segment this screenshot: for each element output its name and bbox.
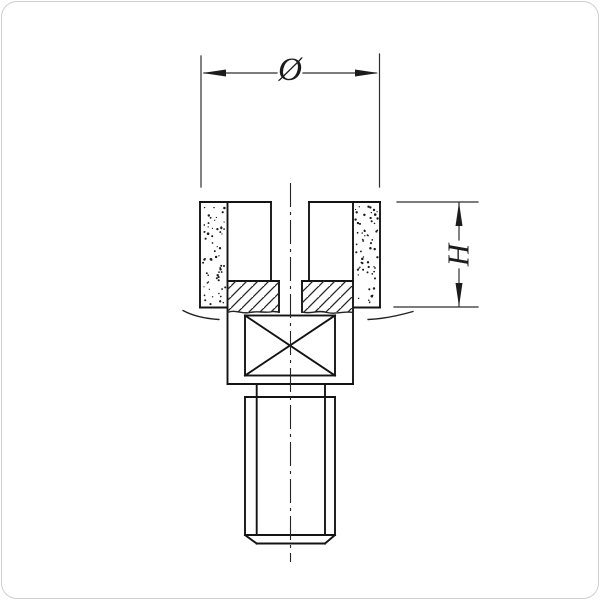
speckle-dot	[213, 207, 214, 208]
speckle-dot	[208, 214, 210, 216]
speckle-dot	[219, 247, 221, 249]
speckle-dot	[204, 207, 205, 208]
hub-hatch-right	[302, 281, 353, 312]
speckle-dot	[211, 259, 213, 261]
speckle-dot	[357, 269, 359, 271]
break-line-outer-left	[183, 311, 219, 320]
speckle-dot	[376, 256, 378, 258]
speckle-dot	[205, 238, 207, 240]
speckle-dot	[367, 234, 369, 236]
speckle-dot	[216, 277, 218, 279]
speckle-dot	[357, 222, 359, 224]
speckle-dot	[372, 295, 373, 296]
arrowhead-left-icon	[203, 70, 227, 77]
break-line-hub-left	[228, 311, 280, 313]
speckle-dot	[359, 206, 360, 207]
speckle-dot	[208, 222, 210, 224]
speckle-dot	[368, 299, 370, 301]
break-line-outer-right	[368, 312, 413, 320]
speckle-dot	[371, 273, 373, 275]
speckle-dot	[369, 217, 371, 219]
speckle-dot	[202, 262, 204, 264]
speckle-dot	[376, 230, 378, 232]
speckle-dot	[374, 213, 377, 216]
chamfer-right	[325, 535, 335, 544]
speckle-dot	[219, 300, 221, 302]
speckle-dot	[209, 289, 210, 290]
speckle-dot	[362, 269, 364, 271]
speckle-dot	[211, 235, 213, 237]
speckle-dot	[216, 228, 218, 230]
speckle-dot	[358, 274, 359, 275]
chamfer-left	[245, 535, 257, 544]
speckle-dot	[367, 261, 369, 263]
speckle-dot	[370, 242, 372, 244]
speckle-dot	[218, 293, 220, 295]
speckle-dot	[374, 267, 376, 269]
speckle-dot	[204, 231, 205, 232]
speckle-dot	[219, 231, 221, 233]
speckle-dot	[206, 272, 208, 274]
abrasive-segment-right	[354, 206, 378, 304]
speckle-dot	[355, 211, 357, 213]
speckle-dot	[203, 258, 205, 260]
arrowhead-down-icon	[456, 283, 463, 307]
speckle-dot	[223, 207, 226, 210]
speckle-dot	[224, 286, 226, 288]
speckle-dot	[361, 232, 363, 234]
speckle-dot	[371, 239, 373, 241]
speckle-dot	[357, 232, 359, 234]
speckle-dot	[208, 226, 209, 227]
speckle-dot	[216, 217, 217, 218]
speckle-dot	[222, 211, 224, 213]
speckle-dot	[373, 287, 375, 289]
speckle-dot	[376, 217, 378, 219]
speckle-dot	[355, 251, 357, 253]
speckle-dot	[223, 265, 225, 267]
speckle-dot	[214, 250, 216, 252]
arrowhead-up-icon	[456, 203, 463, 227]
speckle-dot	[204, 299, 206, 301]
speckle-dot	[361, 258, 364, 261]
speckle-dot	[210, 217, 212, 219]
speckle-dot	[355, 209, 356, 210]
speckle-dot	[207, 232, 210, 235]
speckle-dot	[204, 295, 206, 297]
speckle-dot	[359, 266, 360, 267]
speckle-dot	[374, 223, 376, 225]
speckle-dot	[220, 296, 222, 298]
speckle-dot	[369, 247, 372, 250]
speckle-dot	[220, 265, 222, 267]
speckle-dot	[369, 301, 370, 302]
height-label: H	[443, 244, 474, 266]
diameter-label: Ø	[278, 54, 302, 87]
speckle-dot	[363, 214, 365, 216]
speckle-dot	[362, 240, 364, 242]
speckle-dot	[221, 271, 223, 273]
speckle-dot	[354, 218, 356, 220]
speckle-dot	[367, 206, 369, 208]
speckle-dot	[221, 233, 222, 234]
speckle-dot	[373, 209, 375, 211]
speckle-dot	[221, 288, 223, 290]
speckle-dot	[367, 271, 369, 273]
speckle-dot	[212, 228, 213, 229]
speckle-dot	[212, 242, 214, 244]
speckle-dot	[368, 288, 370, 290]
speckle-dot	[364, 230, 366, 232]
speckle-dot	[371, 212, 372, 213]
speckle-dot	[358, 298, 359, 299]
speckle-dot	[373, 271, 375, 273]
speckle-dot	[356, 244, 358, 246]
speckle-dot	[363, 256, 364, 257]
speckle-dot	[376, 211, 377, 212]
speckle-dot	[218, 279, 220, 281]
speckle-dot	[207, 282, 209, 284]
speckle-dot	[220, 226, 222, 228]
speckle-dot	[214, 220, 215, 221]
speckle-dot	[223, 302, 225, 304]
speckle-dot	[212, 296, 213, 297]
speckle-dot	[361, 262, 363, 264]
speckle-dot	[203, 286, 204, 287]
speckle-dot	[371, 220, 373, 222]
speckle-dot	[364, 235, 365, 236]
speckle-dot	[359, 223, 361, 225]
speckle-dot	[373, 248, 375, 250]
speckle-dot	[218, 276, 220, 278]
speckle-dot	[360, 250, 362, 252]
drawing-canvas: Ø H	[0, 0, 600, 600]
speckle-dot	[223, 221, 224, 222]
hub-hatch-left	[228, 281, 280, 312]
speckle-dot	[219, 268, 221, 270]
speckle-dot	[373, 266, 374, 267]
speckle-dot	[374, 277, 376, 279]
speckle-dot	[209, 303, 211, 305]
arrowhead-right-icon	[355, 70, 379, 77]
speckle-dot	[223, 228, 225, 230]
speckle-dot	[368, 266, 370, 268]
speckle-dot	[218, 271, 220, 273]
speckle-dot	[217, 246, 218, 247]
speckle-dot	[203, 224, 205, 226]
speckle-dot	[215, 256, 217, 258]
speckle-dot	[207, 274, 209, 276]
speckle-dot	[218, 255, 219, 256]
speckle-dot	[358, 268, 359, 269]
abrasive-segment-left	[202, 207, 226, 305]
technical-drawing	[0, 0, 600, 600]
